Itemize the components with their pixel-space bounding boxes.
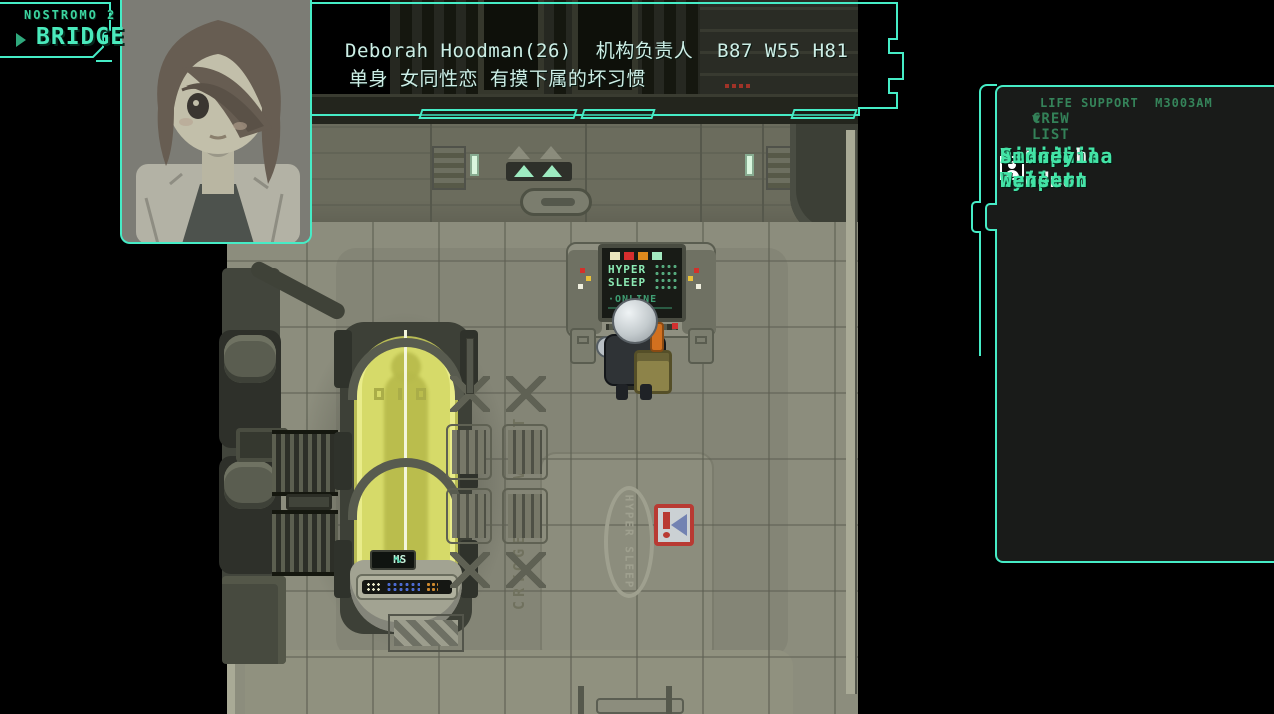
status-lights	[386, 582, 420, 593]
pod-status-panel	[356, 574, 458, 600]
dialog-frame-top	[312, 2, 898, 4]
grate-walkway	[272, 430, 338, 496]
led-light	[580, 268, 585, 273]
door-light	[470, 154, 479, 176]
dialog-frame-bracket	[888, 78, 904, 80]
sensor-arrow-icon	[542, 165, 562, 177]
ship-name: NOSTROMO 2	[24, 8, 116, 22]
door-sensor-slot	[506, 162, 572, 181]
led-light	[696, 284, 701, 289]
crew-panel-outer-notch	[971, 201, 981, 233]
left-triangle-icon	[671, 514, 687, 536]
status-lights	[426, 582, 438, 593]
dialog-frame-right	[896, 2, 898, 40]
player-leg	[640, 384, 652, 400]
game-screen: HS∿ CRYOGENIC VAULT HYPER SLEEP ·ONLINE	[0, 0, 1274, 714]
player-helmet	[612, 298, 658, 344]
dialog-line-2[interactable]: 单身 女同性恋 有摸下属的坏习惯	[349, 64, 646, 91]
exclamation-dot-icon	[663, 532, 670, 538]
floor-pole	[466, 338, 474, 394]
dialog-frame-step	[858, 107, 898, 109]
dialog-frame-bracket	[902, 54, 904, 78]
hazard-chevron	[508, 146, 530, 159]
floor-vent	[446, 424, 492, 480]
player-leg	[616, 384, 628, 400]
wall-indicator-light	[725, 84, 729, 88]
floor-x-marking	[450, 552, 490, 588]
grate-connector	[286, 494, 332, 510]
indicator-light	[638, 252, 648, 260]
location-arrow-icon	[16, 33, 26, 47]
grate-walkway	[272, 510, 338, 576]
floor-vent	[502, 424, 548, 480]
dialog-frame-bracket	[896, 94, 898, 108]
east-wall-edge	[846, 130, 857, 694]
warning-sign	[654, 504, 694, 546]
hypersleep-floor-sign: HYPER SLEEP	[604, 486, 654, 598]
character-portrait	[120, 0, 312, 244]
indicator-light	[624, 252, 634, 260]
rail-slot-decor	[580, 109, 655, 119]
wall-seam	[700, 124, 702, 232]
wall-vent-stack	[432, 146, 466, 190]
wall-indicator-light	[746, 84, 750, 88]
machinery-foot	[222, 576, 286, 664]
rail-slot-decor	[418, 109, 577, 119]
floor-hatch	[388, 614, 464, 652]
console-side-panel	[568, 250, 602, 334]
led-light	[578, 284, 583, 289]
wall-indicator-light	[739, 84, 743, 88]
wall-door[interactable]	[520, 188, 592, 216]
led-light	[688, 276, 693, 281]
dialog-frame-bracket	[888, 40, 890, 52]
wall-seam	[762, 124, 764, 232]
console-key-red[interactable]	[672, 323, 678, 329]
wall-seam	[585, 124, 587, 232]
crew-panel-notch	[985, 203, 997, 231]
exclamation-icon	[663, 512, 670, 529]
console-foot-locker	[570, 328, 596, 364]
hazard-chevron	[540, 146, 562, 159]
door-post	[578, 686, 584, 714]
floor-vent	[502, 488, 548, 544]
indicator-light	[610, 252, 620, 260]
crew-member-name: Sidney Wenser	[1000, 144, 1075, 192]
dialog-line-1[interactable]: Deborah Hoodman(26) 机构负责人 B87 W55 H81	[345, 36, 848, 63]
door-post	[666, 686, 672, 714]
floor-vent	[446, 488, 492, 544]
floor-x-marking	[506, 376, 546, 412]
waveform-icon: ∿	[393, 552, 402, 567]
portrait-art	[122, 0, 312, 244]
wall-indicator-light	[732, 84, 736, 88]
pod-monitor[interactable]: HS∿	[370, 550, 416, 570]
floor-x-marking	[506, 552, 546, 588]
location-name: BRIDGE	[36, 24, 125, 50]
led-light	[586, 276, 591, 281]
console-foot-locker	[688, 328, 714, 364]
console-side-panel	[682, 250, 716, 334]
console-title-line1: HYPER	[608, 263, 646, 276]
screen-data-dots	[654, 263, 678, 291]
console-title-line2: SLEEP	[608, 276, 646, 289]
led-light	[694, 268, 699, 273]
sensor-arrow-icon	[514, 165, 534, 177]
status-lights	[366, 582, 380, 593]
door-light	[745, 154, 754, 176]
dialog-frame-bracket	[888, 80, 890, 92]
crew-panel-outer-line	[979, 84, 997, 96]
pod-pylon	[334, 432, 352, 490]
rail-slot-decor	[790, 109, 857, 119]
indicator-light	[652, 252, 662, 260]
door-handle	[541, 198, 575, 206]
life-support-label: LIFE SUPPORT M3003AM	[1040, 96, 1213, 110]
